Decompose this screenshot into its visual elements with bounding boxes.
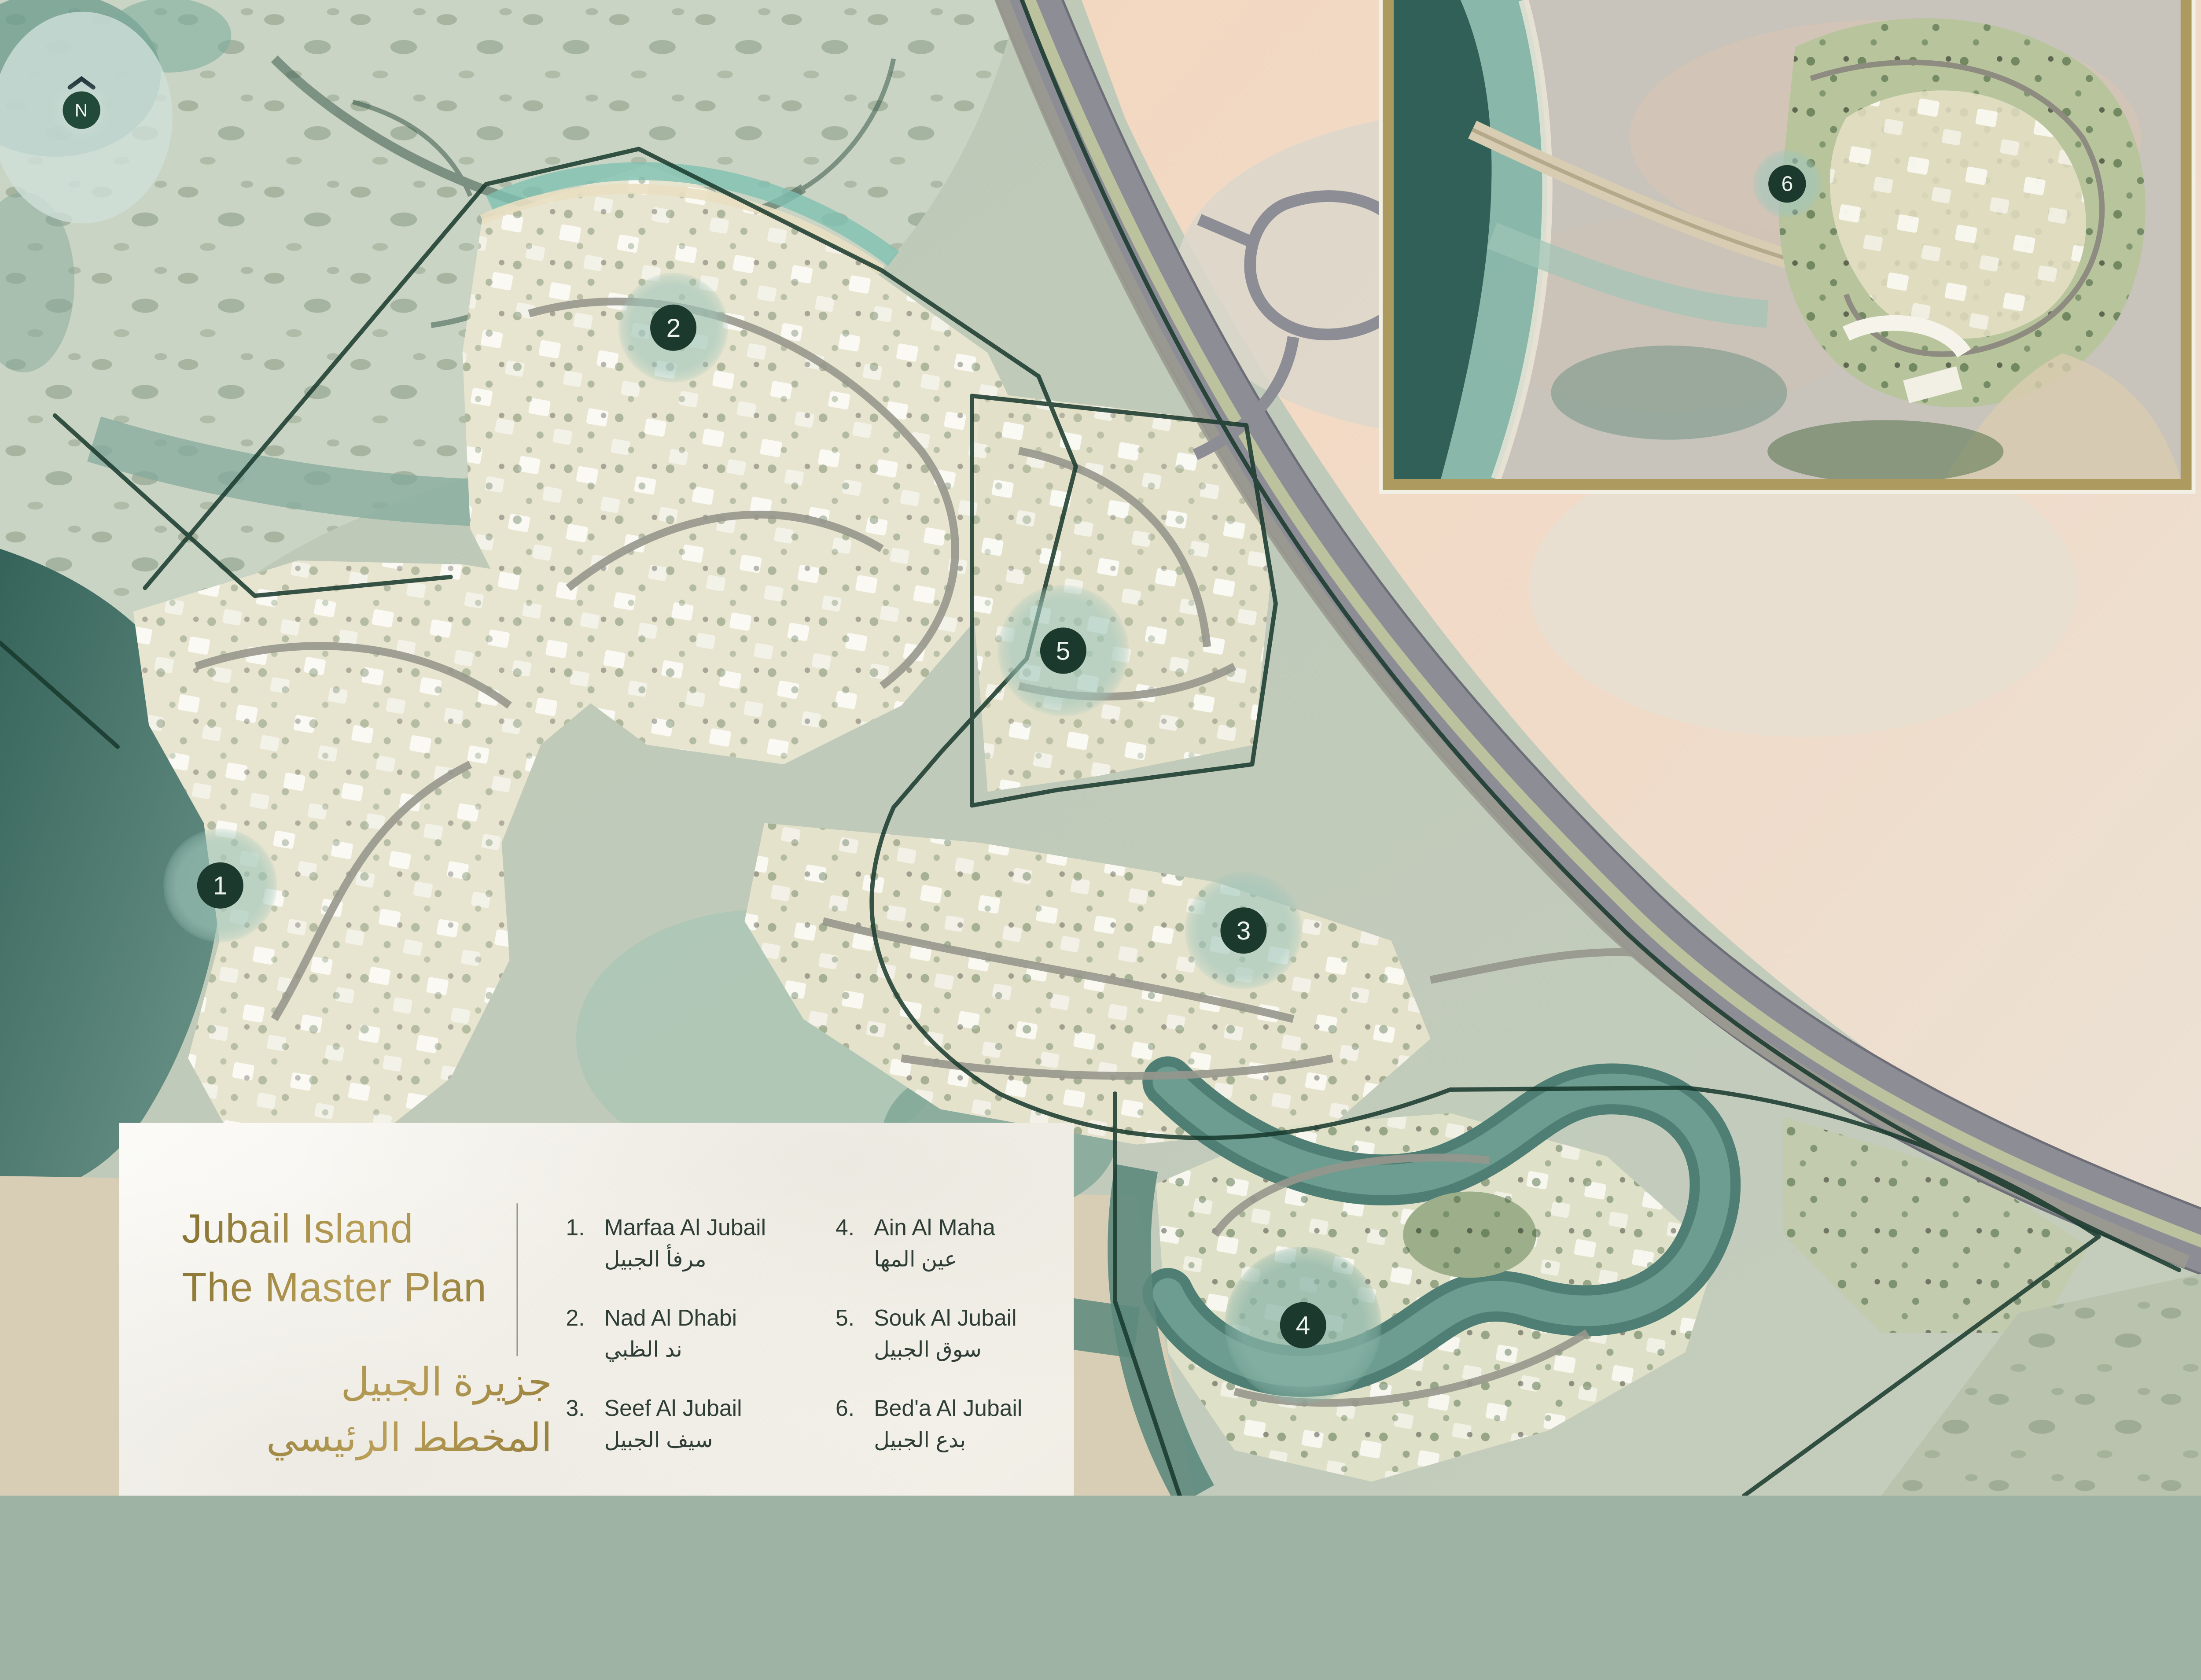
legend-item: 3. Seef Al Jubail سيف الجبيل: [566, 1396, 766, 1454]
marker-badge: 4: [1280, 1302, 1326, 1348]
marker-badge: 2: [650, 305, 696, 351]
legend-divider: [516, 1203, 518, 1356]
legend-item-name-ar: مرفأ الجبيل: [604, 1245, 766, 1274]
marker-badge: 6: [1768, 165, 1806, 203]
marker-label: 5: [1056, 637, 1071, 663]
legend-item-number: 3.: [566, 1396, 604, 1454]
legend-item-name-ar: بدع الجبيل: [874, 1426, 1022, 1454]
legend-item-number: 4.: [835, 1215, 874, 1273]
marker-badge: 5: [1040, 627, 1086, 674]
legend-title-ar-line2: المخطط الرئيسي: [182, 1410, 552, 1465]
legend-item: 6. Bed'a Al Jubail بدع الجبيل: [835, 1396, 1022, 1454]
compass-label: N: [75, 99, 88, 121]
district-marker-souk-al-jubail[interactable]: 5: [1040, 627, 1086, 674]
legend-item-number: 2.: [566, 1305, 604, 1363]
legend-column-2: 4. Ain Al Maha عين المها 5. Souk Al Juba…: [835, 1215, 1022, 1486]
legend-item-name-en: Ain Al Maha: [874, 1215, 995, 1241]
legend-item: 1. Marfaa Al Jubail مرفأ الجبيل: [566, 1215, 766, 1273]
north-arrow-icon: [66, 76, 96, 90]
legend-item: 4. Ain Al Maha عين المها: [835, 1215, 1022, 1273]
legend-item: 5. Souk Al Jubail سوق الجبيل: [835, 1305, 1022, 1363]
inset-map: [1383, 0, 2192, 490]
legend-panel: Jubail Island The Master Plan جزيرة الجب…: [119, 1123, 1074, 1496]
legend-item-number: 6.: [835, 1396, 874, 1454]
marker-badge: 1: [197, 862, 243, 909]
legend-item-name-ar: ند الظبي: [604, 1336, 737, 1364]
master-plan-poster: N 1 2 3 4 5 6: [0, 0, 2201, 1496]
marker-badge: 3: [1220, 907, 1266, 954]
legend-title-english: Jubail Island The Master Plan: [182, 1200, 487, 1317]
legend-title-en-line2: The Master Plan: [182, 1259, 487, 1317]
district-marker-nad-al-dhabi[interactable]: 2: [650, 305, 696, 351]
legend-column-1: 1. Marfaa Al Jubail مرفأ الجبيل 2. Nad A…: [566, 1215, 766, 1486]
district-marker-seef-al-jubail[interactable]: 3: [1220, 907, 1266, 954]
legend-item-name-ar: عين المها: [874, 1245, 995, 1274]
marker-label: 6: [1781, 173, 1793, 195]
compass-circle: N: [63, 92, 100, 129]
marker-label: 2: [666, 315, 681, 341]
marker-label: 3: [1237, 917, 1251, 943]
legend-item-name-en: Marfaa Al Jubail: [604, 1215, 766, 1241]
marker-label: 1: [213, 873, 228, 899]
marker-label: 4: [1296, 1312, 1310, 1338]
legend-title-arabic: جزيرة الجبيل المخطط الرئيسي: [182, 1354, 552, 1466]
legend-item-name-en: Bed'a Al Jubail: [874, 1396, 1022, 1421]
legend-title-en-line1: Jubail Island: [182, 1200, 487, 1258]
district-marker-marfaa-al-jubail[interactable]: 1: [197, 862, 243, 909]
legend-item-name-en: Nad Al Dhabi: [604, 1305, 737, 1331]
legend-item-number: 5.: [835, 1305, 874, 1363]
north-indicator: N: [63, 76, 100, 129]
legend-item: 2. Nad Al Dhabi ند الظبي: [566, 1305, 766, 1363]
legend-item-name-ar: سيف الجبيل: [604, 1426, 742, 1454]
district-marker-ain-al-maha[interactable]: 4: [1280, 1302, 1326, 1348]
legend-title-ar-line1: جزيرة الجبيل: [182, 1354, 552, 1410]
legend-item-name-ar: سوق الجبيل: [874, 1336, 1016, 1364]
legend-item-name-en: Seef Al Jubail: [604, 1396, 742, 1421]
legend-item-name-en: Souk Al Jubail: [874, 1305, 1016, 1331]
inset-satellite: [1394, 0, 2181, 479]
district-marker-beda-al-jubail[interactable]: 6: [1768, 165, 1806, 203]
legend-item-number: 1.: [566, 1215, 604, 1273]
